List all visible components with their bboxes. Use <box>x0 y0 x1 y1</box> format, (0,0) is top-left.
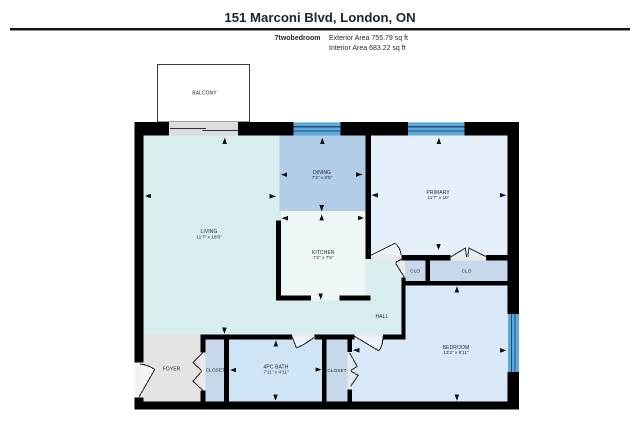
svg-text:7twobedroom: 7twobedroom <box>275 35 321 42</box>
svg-text:CLOSET: CLOSET <box>327 368 346 374</box>
svg-text:7'2" x 6'5": 7'2" x 6'5" <box>312 175 333 180</box>
svg-text:151 Marconi Blvd, London, ON: 151 Marconi Blvd, London, ON <box>224 10 415 25</box>
svg-text:7'2" x 7'5": 7'2" x 7'5" <box>313 255 334 260</box>
svg-text:CLO: CLO <box>410 268 420 274</box>
svg-text:Exterior Area 755.79 sq ft: Exterior Area 755.79 sq ft <box>329 35 408 42</box>
svg-text:7'11" x 4'11": 7'11" x 4'11" <box>263 370 288 375</box>
svg-text:FOYER: FOYER <box>163 367 181 373</box>
svg-text:CLOSET: CLOSET <box>206 368 225 374</box>
svg-text:11'7" x 10': 11'7" x 10' <box>428 195 449 200</box>
svg-text:CLO: CLO <box>462 268 472 274</box>
svg-text:11'7" x 16'8": 11'7" x 16'8" <box>196 235 222 240</box>
svg-text:BALCONY: BALCONY <box>192 90 217 96</box>
svg-text:HALL: HALL <box>376 314 389 320</box>
svg-text:13'2" x 9'11": 13'2" x 9'11" <box>443 350 469 355</box>
svg-text:Interior Area 683.22 sq ft: Interior Area 683.22 sq ft <box>329 45 406 52</box>
